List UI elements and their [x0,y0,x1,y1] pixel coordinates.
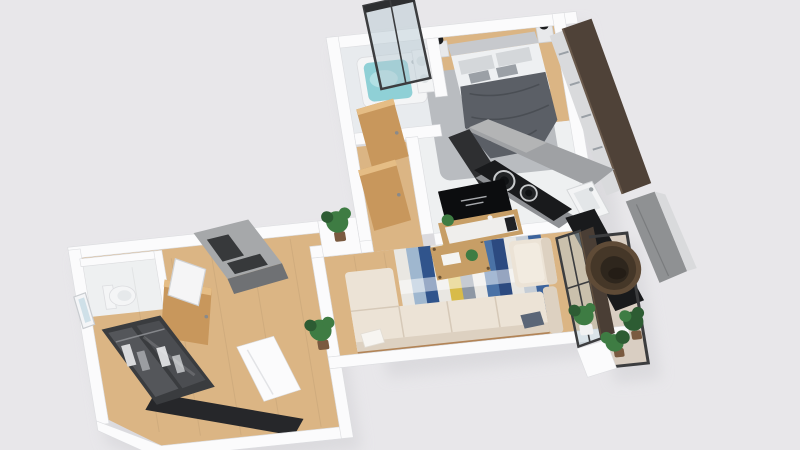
floor-plan-canvas [0,0,800,450]
armchair [508,237,558,288]
